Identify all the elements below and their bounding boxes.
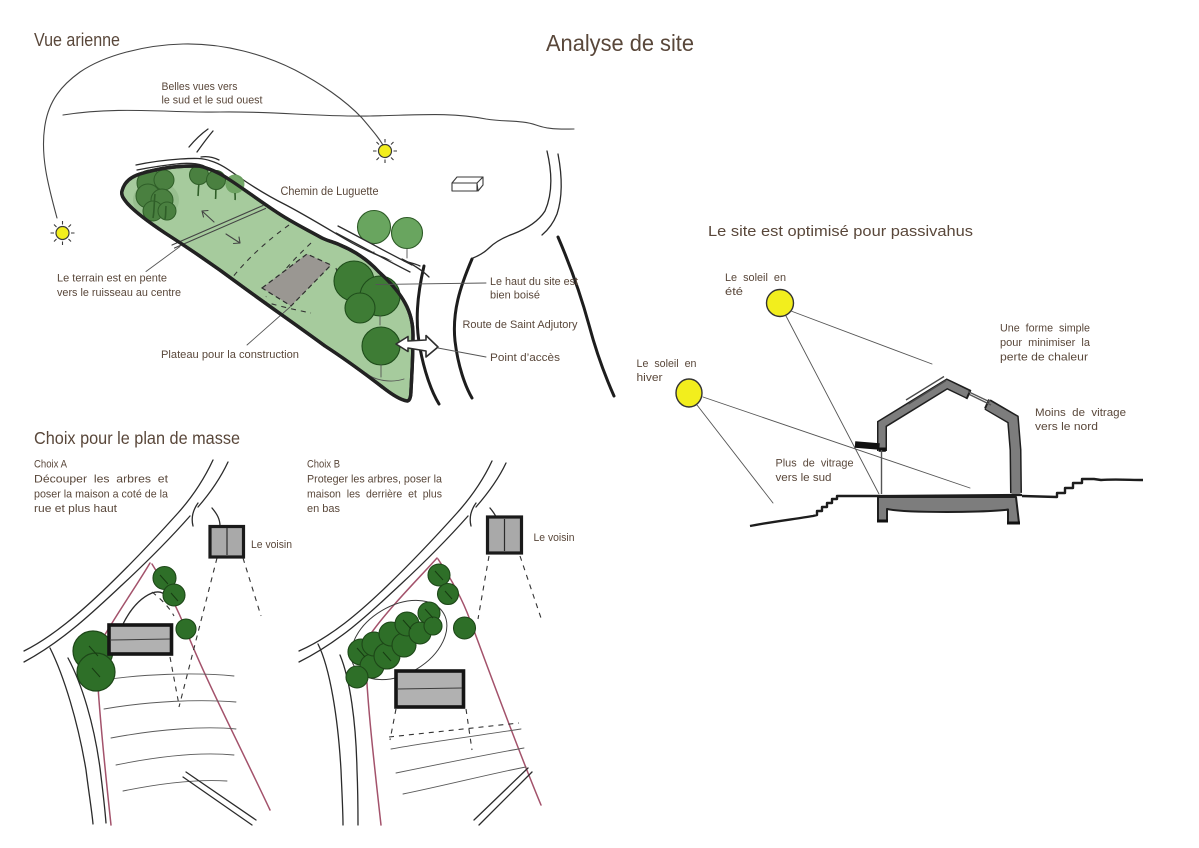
svg-text:bien boisé: bien boisé [490,290,540,302]
svg-text:Choix pour le plan de masse: Choix pour le plan de masse [34,428,240,448]
svg-text:Plateau pour la construction: Plateau pour la construction [161,349,299,361]
svg-text:pour minimiser la: pour minimiser la [1000,337,1091,349]
svg-text:Le haut du site est: Le haut du site est [490,276,578,288]
svg-text:Point d’accès: Point d’accès [490,352,561,364]
svg-text:Le voisin: Le voisin [251,539,292,551]
svg-text:été: été [725,286,743,298]
svg-text:Une forme simple: Une forme simple [1000,323,1090,335]
svg-text:Plus de vitrage: Plus de vitrage [776,458,854,470]
svg-text:vers le nord: vers le nord [1035,421,1098,433]
svg-text:Le voisin: Le voisin [534,532,575,544]
svg-text:vers le ruisseau au centre: vers le ruisseau au centre [57,287,181,299]
svg-text:Belles vues vers: Belles vues vers [162,81,238,93]
svg-text:Proteger les arbres, poser la: Proteger les arbres, poser la [307,474,443,486]
svg-text:poser la maison a coté de la: poser la maison a coté de la [34,489,169,501]
svg-text:Chemin de Luguette: Chemin de Luguette [281,186,379,198]
svg-text:Moins de vitrage: Moins de vitrage [1035,407,1126,419]
svg-text:Le soleil en: Le soleil en [725,272,786,284]
svg-text:Vue arienne: Vue arienne [34,30,120,50]
svg-text:Le site est optimisé pour pass: Le site est optimisé pour passivahus [708,223,973,240]
svg-text:perte de chaleur: perte de chaleur [1000,352,1088,364]
svg-text:maison les derrière et plu: maison les derrière et plus [307,489,442,501]
svg-text:vers le sud: vers le sud [776,472,832,484]
svg-text:en bas: en bas [307,503,340,515]
svg-text:Découper les arbres et: Découper les arbres et [34,474,168,486]
svg-text:Analyse de site: Analyse de site [546,30,694,56]
svg-text:rue et plus haut: rue et plus haut [34,503,117,515]
svg-text:Le soleil en: Le soleil en [637,358,697,370]
svg-text:Choix B: Choix B [307,459,340,471]
svg-text:hiver: hiver [637,372,663,384]
svg-text:Le terrain est en pente: Le terrain est en pente [57,273,167,285]
svg-text:le sud et le sud ouest: le sud et le sud ouest [162,95,263,107]
svg-text:Route de Saint Adjutory: Route de Saint Adjutory [463,319,578,331]
svg-text:Choix A: Choix A [34,459,68,471]
